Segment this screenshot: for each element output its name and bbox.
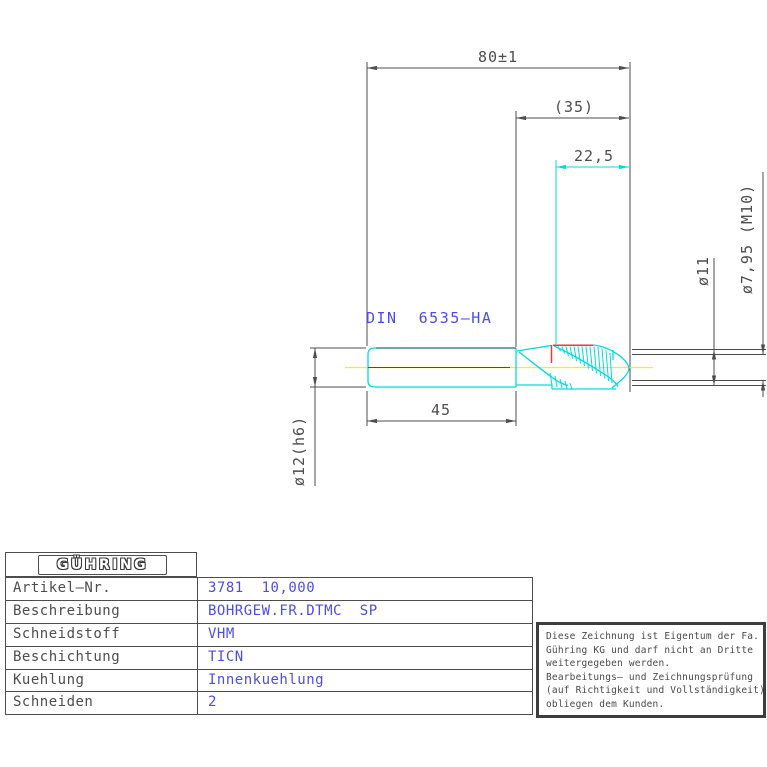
tool-drawing-canvas: 80±1 (35) 22,5 45 ø12(h6) ø11 ø7,95 (M10… (0, 0, 767, 552)
row-value: 2 (198, 692, 532, 714)
row-label: Schneidstoff (6, 624, 198, 646)
table-row: Kuehlung Innenkuehlung (6, 670, 532, 693)
din-standard-label: DIN 6535–HA (366, 309, 492, 327)
row-value: 3781 10,000 (198, 578, 532, 600)
note-line: Bearbeitungs– und Zeichnungsprüfung (546, 671, 757, 685)
table-row: Beschreibung BOHRGEW.FR.DTMC SP (6, 601, 532, 624)
note-line: weitergegeben werden. (546, 657, 757, 671)
row-label: Beschichtung (6, 647, 198, 669)
row-value: BOHRGEW.FR.DTMC SP (198, 601, 532, 623)
row-value: Innenkuehlung (198, 670, 532, 692)
note-line: (auf Richtigkeit und Vollständigkeit) (546, 684, 757, 698)
dim-ref-length: (35) (554, 98, 594, 116)
extension-lines (310, 62, 766, 426)
row-label: Beschreibung (6, 601, 198, 623)
dim-shank-diameter: ø12(h6) (290, 416, 308, 486)
row-label: Schneiden (6, 692, 198, 714)
dim-overall-length: 80±1 (478, 48, 518, 66)
technical-drawing-sheet: 80±1 (35) 22,5 45 ø12(h6) ø11 ø7,95 (M10… (0, 0, 767, 767)
dim-tip-diameter: ø7,95 (M10) (738, 184, 756, 294)
table-row: Schneidstoff VHM (6, 624, 532, 647)
logo-frame: GÜHRING (38, 555, 167, 575)
row-label: Artikel–Nr. (6, 578, 198, 600)
note-line: obliegen dem Kunden. (546, 698, 757, 712)
dim-shank-length: 45 (431, 401, 451, 419)
table-row: Beschichtung TICN (6, 647, 532, 670)
note-line: Diese Zeichnung ist Eigentum der Fa. (546, 630, 757, 644)
table-row: Artikel–Nr. 3781 10,000 (6, 578, 532, 601)
row-value: VHM (198, 624, 532, 646)
dim-step-diameter: ø11 (694, 256, 712, 286)
dimension-arrows (313, 66, 765, 423)
row-value: TICN (198, 647, 532, 669)
tool-dark-edges (368, 348, 516, 368)
table-row: Schneiden 2 (6, 692, 532, 714)
dim-thread-length: 22,5 (574, 147, 614, 165)
thread-length-dimension-line (556, 160, 629, 344)
logo-cell: GÜHRING (5, 552, 197, 577)
spec-table: Artikel–Nr. 3781 10,000 Beschreibung BOH… (5, 577, 533, 715)
guehring-logo: GÜHRING (57, 557, 148, 573)
row-label: Kuehlung (6, 670, 198, 692)
ownership-note-box: Diese Zeichnung ist Eigentum der Fa. Güh… (536, 622, 766, 718)
note-line: Gühring KG und darf nicht an Dritte (546, 644, 757, 658)
